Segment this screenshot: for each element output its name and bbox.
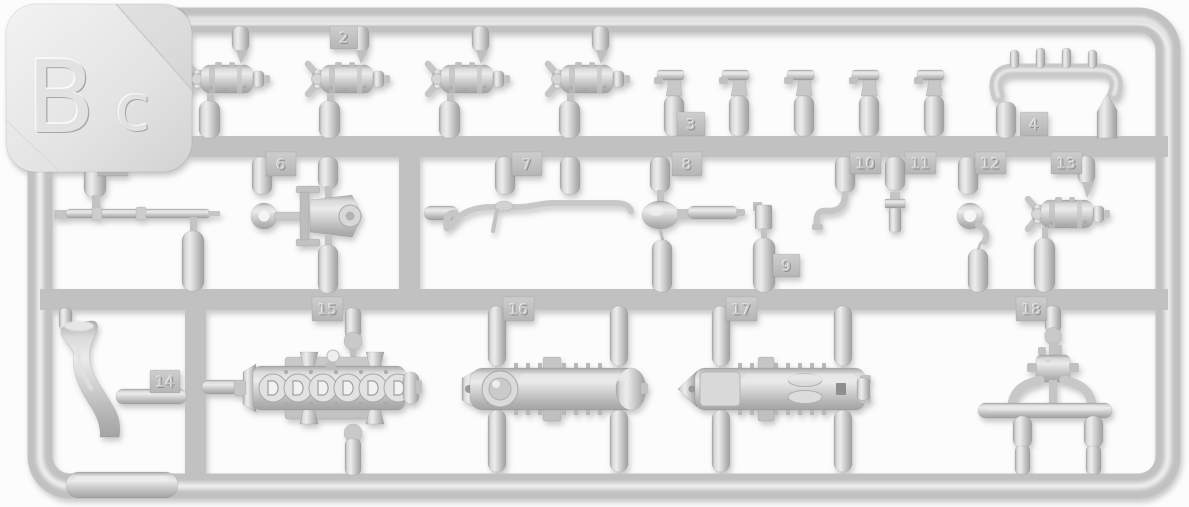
part-9-fitting <box>753 202 775 292</box>
svg-text:10: 10 <box>856 155 876 173</box>
part-16-engine-cover <box>462 306 648 472</box>
sprue-runner-vertical-left <box>192 295 196 480</box>
svg-text:12: 12 <box>981 155 1001 173</box>
part-15-engine-block <box>202 308 422 475</box>
part-12-ring <box>957 157 988 292</box>
svg-text:6: 6 <box>276 156 286 174</box>
svg-text:13: 13 <box>1057 155 1077 173</box>
part-2-cylinder <box>188 26 270 138</box>
svg-text:B: B <box>26 39 95 156</box>
sprue-code-plate: B B B c c c <box>6 4 192 172</box>
svg-text:17: 17 <box>732 301 752 319</box>
svg-text:18: 18 <box>1022 301 1042 319</box>
part-number-tag-4: 4 4 4 <box>1020 112 1048 136</box>
sprue-drawing: 1 1 1 2 2 2 3 3 3 4 4 4 5 5 5 <box>0 0 1189 507</box>
svg-text:14: 14 <box>155 373 175 391</box>
part-number-tag-10: 10 10 10 <box>850 152 881 174</box>
part-number-tag-18: 18 18 18 <box>1016 297 1047 321</box>
part-number-tag-11: 11 11 11 <box>905 152 936 174</box>
part-cylinder-4th <box>428 26 510 138</box>
svg-text:c: c <box>115 72 150 146</box>
svg-text:2: 2 <box>339 29 349 47</box>
part-18-distributor <box>978 306 1112 474</box>
part-number-tag-2: 2 2 2 <box>330 26 358 49</box>
part-number-tag-17: 17 17 17 <box>726 297 757 321</box>
svg-text:9: 9 <box>782 257 792 275</box>
part-13-cylinder <box>1028 156 1110 292</box>
sprue-rail-3 <box>40 296 1168 307</box>
svg-text:11: 11 <box>911 155 931 173</box>
sprue-photo: 1 1 1 2 2 2 3 3 3 4 4 4 5 5 5 <box>0 0 1189 507</box>
sprue-code-letter-B: B B B <box>25 38 96 157</box>
sprue-runner-vertical-mid <box>406 140 410 300</box>
svg-text:8: 8 <box>682 156 692 174</box>
part-number-tag-14: 14 14 14 <box>150 370 180 393</box>
part-number-tag-3: 3 3 3 <box>677 112 705 136</box>
part-number-tag-8: 8 8 8 <box>672 152 702 176</box>
part-number-tag-7: 7 7 7 <box>512 152 542 176</box>
part-number-tag-16: 16 16 16 <box>503 297 534 321</box>
svg-text:7: 7 <box>522 156 532 174</box>
sprue-code-letter-c: c c c <box>114 71 151 147</box>
part-number-tag-13: 13 13 13 <box>1051 152 1082 174</box>
part-5-rod <box>54 157 220 291</box>
part-11-bolt <box>885 157 905 232</box>
part-number-tag-9: 9 9 9 <box>773 254 800 277</box>
part-cylinder-5th <box>548 26 630 138</box>
sprue-ejector-stub <box>66 472 178 498</box>
part-number-tag-6: 6 6 6 <box>266 152 296 176</box>
part-17-engine-half <box>678 306 871 472</box>
part-6-mount <box>251 157 362 293</box>
part-4-manifold <box>996 48 1117 138</box>
part-10-hook <box>812 157 855 230</box>
svg-text:4: 4 <box>1029 116 1039 134</box>
part-number-tag-12: 12 12 12 <box>975 152 1006 174</box>
svg-text:16: 16 <box>509 301 529 319</box>
part-number-tag-15: 15 15 15 <box>312 297 343 321</box>
svg-text:3: 3 <box>686 116 696 134</box>
svg-text:15: 15 <box>318 301 338 319</box>
part-8-bulb <box>642 157 745 292</box>
